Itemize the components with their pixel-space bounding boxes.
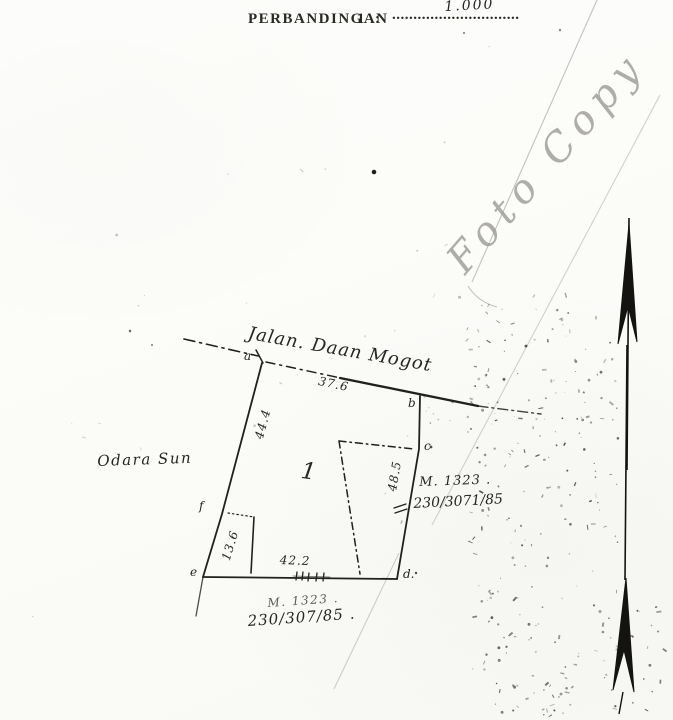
corner-label-d: d. <box>403 567 415 581</box>
neighbor-label: Odara Sun <box>97 449 192 470</box>
scale-number: 1 <box>357 11 365 28</box>
scale-label: PERBANDINGAN <box>248 11 389 28</box>
corner-label-e: e <box>190 565 197 579</box>
survey-tick-marks <box>293 504 407 581</box>
page-edge-fold <box>613 218 637 714</box>
corner-label-b: b <box>408 396 416 410</box>
measurement-bottom: 42.2 <box>280 553 311 568</box>
corner-label-c: c <box>424 439 431 453</box>
scanned-survey-document: PERBANDINGAN 1 : .......................… <box>0 0 673 720</box>
corner-label-a: a <box>244 349 251 363</box>
scale-value-handwritten: 1.000 <box>444 0 495 15</box>
scale-colon: : <box>375 11 380 28</box>
annotation-right-line1: M. 1323 . <box>419 472 491 490</box>
corner-label-f: f <box>199 499 203 513</box>
